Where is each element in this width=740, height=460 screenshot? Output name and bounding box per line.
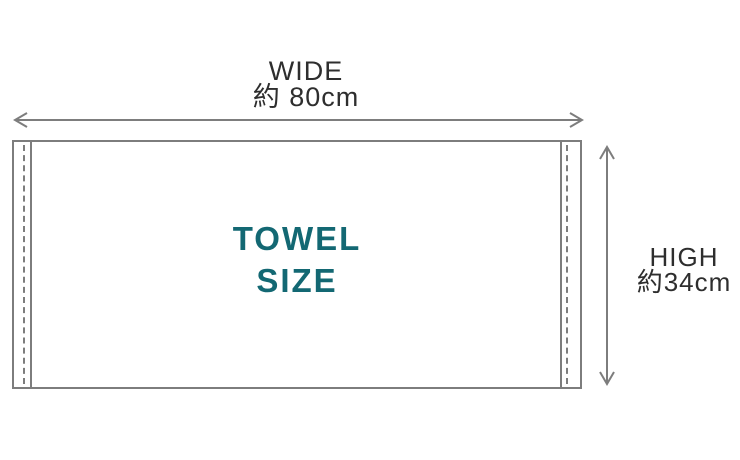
height-dimension-value: 約34cm bbox=[618, 270, 740, 295]
right-stitch-line bbox=[566, 145, 568, 384]
right-hem-line bbox=[560, 142, 562, 387]
left-hem-line bbox=[30, 142, 32, 387]
left-stitch-line bbox=[23, 145, 25, 384]
towel-rectangle: TOWEL SIZE bbox=[12, 140, 582, 389]
towel-size-label-line2: SIZE bbox=[233, 260, 362, 302]
height-dimension-label: HIGH 約34cm bbox=[618, 245, 740, 295]
arrowhead-left-icon bbox=[15, 113, 27, 127]
height-arrow bbox=[600, 147, 614, 384]
arrowhead-up-icon bbox=[600, 147, 614, 159]
arrowhead-down-icon bbox=[600, 372, 614, 384]
towel-size-label: TOWEL SIZE bbox=[233, 218, 362, 302]
width-dimension-label: WIDE 約 80cm bbox=[106, 58, 506, 110]
width-dimension-value: 約 80cm bbox=[106, 84, 506, 110]
width-dimension-name: WIDE bbox=[106, 58, 506, 84]
towel-size-label-line1: TOWEL bbox=[233, 218, 362, 260]
width-arrow bbox=[15, 113, 582, 127]
towel-size-diagram: WIDE 約 80cm TOWEL SIZE HIGH 約34cm bbox=[0, 0, 740, 460]
arrowhead-right-icon bbox=[570, 113, 582, 127]
